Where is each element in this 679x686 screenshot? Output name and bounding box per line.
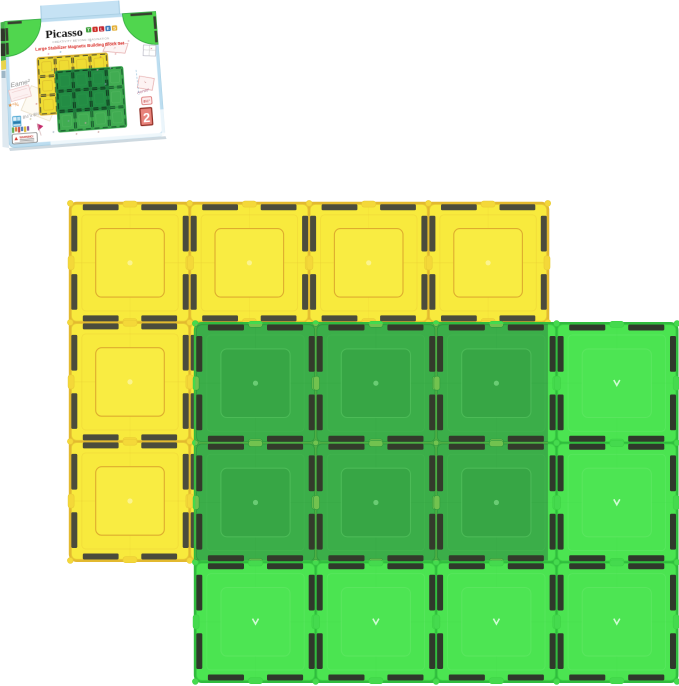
svg-text:2: 2 — [143, 110, 151, 125]
svg-text:8½": 8½" — [143, 99, 150, 104]
svg-text:E: E — [106, 26, 109, 31]
svg-text:↗: ↗ — [113, 46, 116, 50]
svg-text:×: × — [150, 47, 152, 51]
svg-text:S: S — [113, 26, 116, 31]
svg-text:★º¾: ★º¾ — [8, 102, 20, 109]
